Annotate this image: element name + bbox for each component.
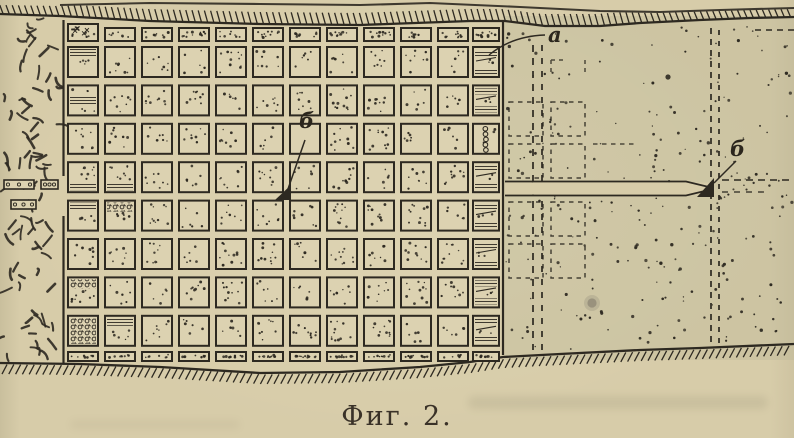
- bleed-smudge: [468, 396, 768, 409]
- mine-plan-diagram: [0, 0, 794, 438]
- label-b-face: б: [730, 138, 745, 159]
- label-b-pillar: б: [299, 110, 314, 131]
- bleed-smudge: [70, 420, 240, 429]
- scanned-figure-page: а б б Фиг. 2.: [0, 0, 794, 438]
- label-a: а: [548, 24, 562, 45]
